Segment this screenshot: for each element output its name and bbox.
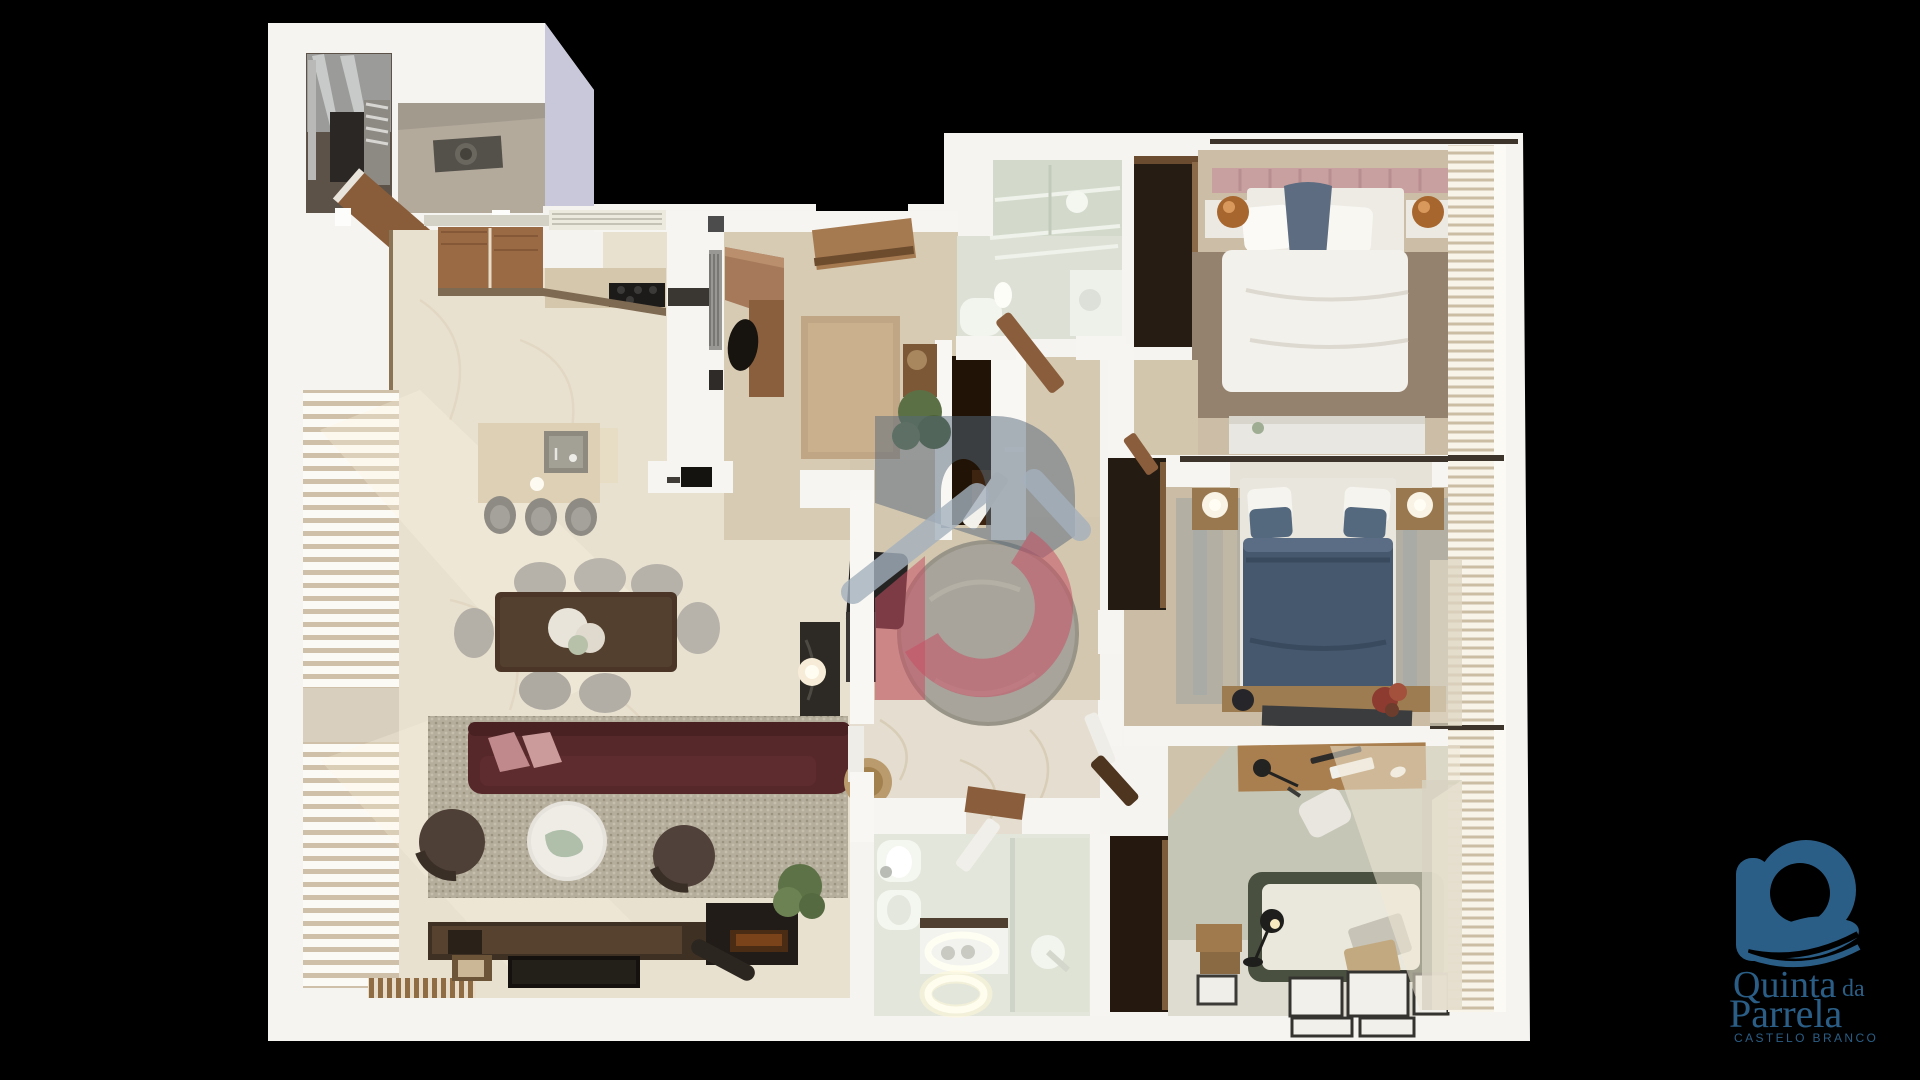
svg-text:CASTELO BRANCO: CASTELO BRANCO <box>1734 1031 1878 1045</box>
svg-text:Parrela: Parrela <box>1729 991 1843 1036</box>
svg-text:da: da <box>1842 976 1865 1002</box>
